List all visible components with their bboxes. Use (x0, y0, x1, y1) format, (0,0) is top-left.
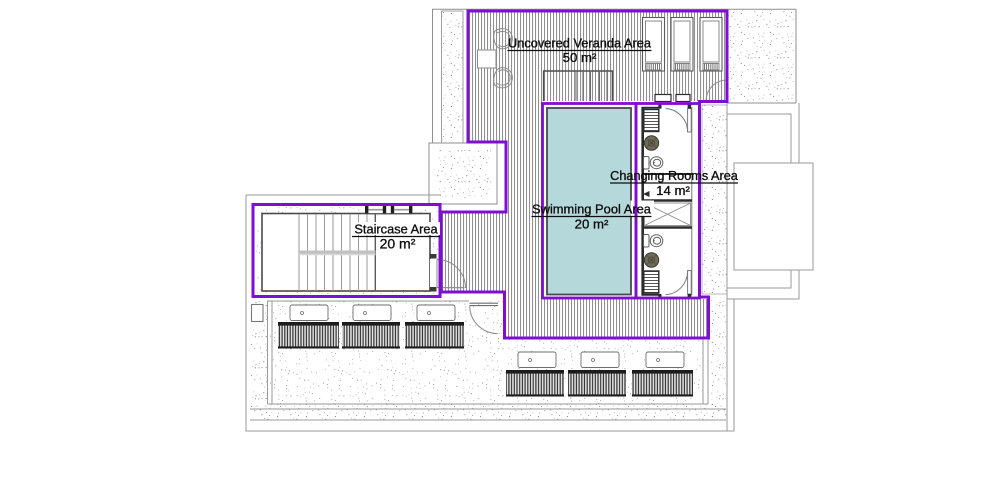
svg-text:14 m²: 14 m² (656, 183, 690, 198)
svg-text:Staircase Area: Staircase Area (354, 222, 438, 237)
svg-text:20 m²: 20 m² (380, 236, 416, 252)
svg-text:50 m²: 50 m² (563, 50, 597, 65)
svg-text:Swimming Pool Area: Swimming Pool Area (532, 202, 652, 217)
svg-text:Uncovered Veranda Area: Uncovered Veranda Area (508, 36, 652, 51)
svg-text:20 m²: 20 m² (575, 217, 609, 232)
svg-text:Changing Rooms Area: Changing Rooms Area (610, 169, 739, 183)
